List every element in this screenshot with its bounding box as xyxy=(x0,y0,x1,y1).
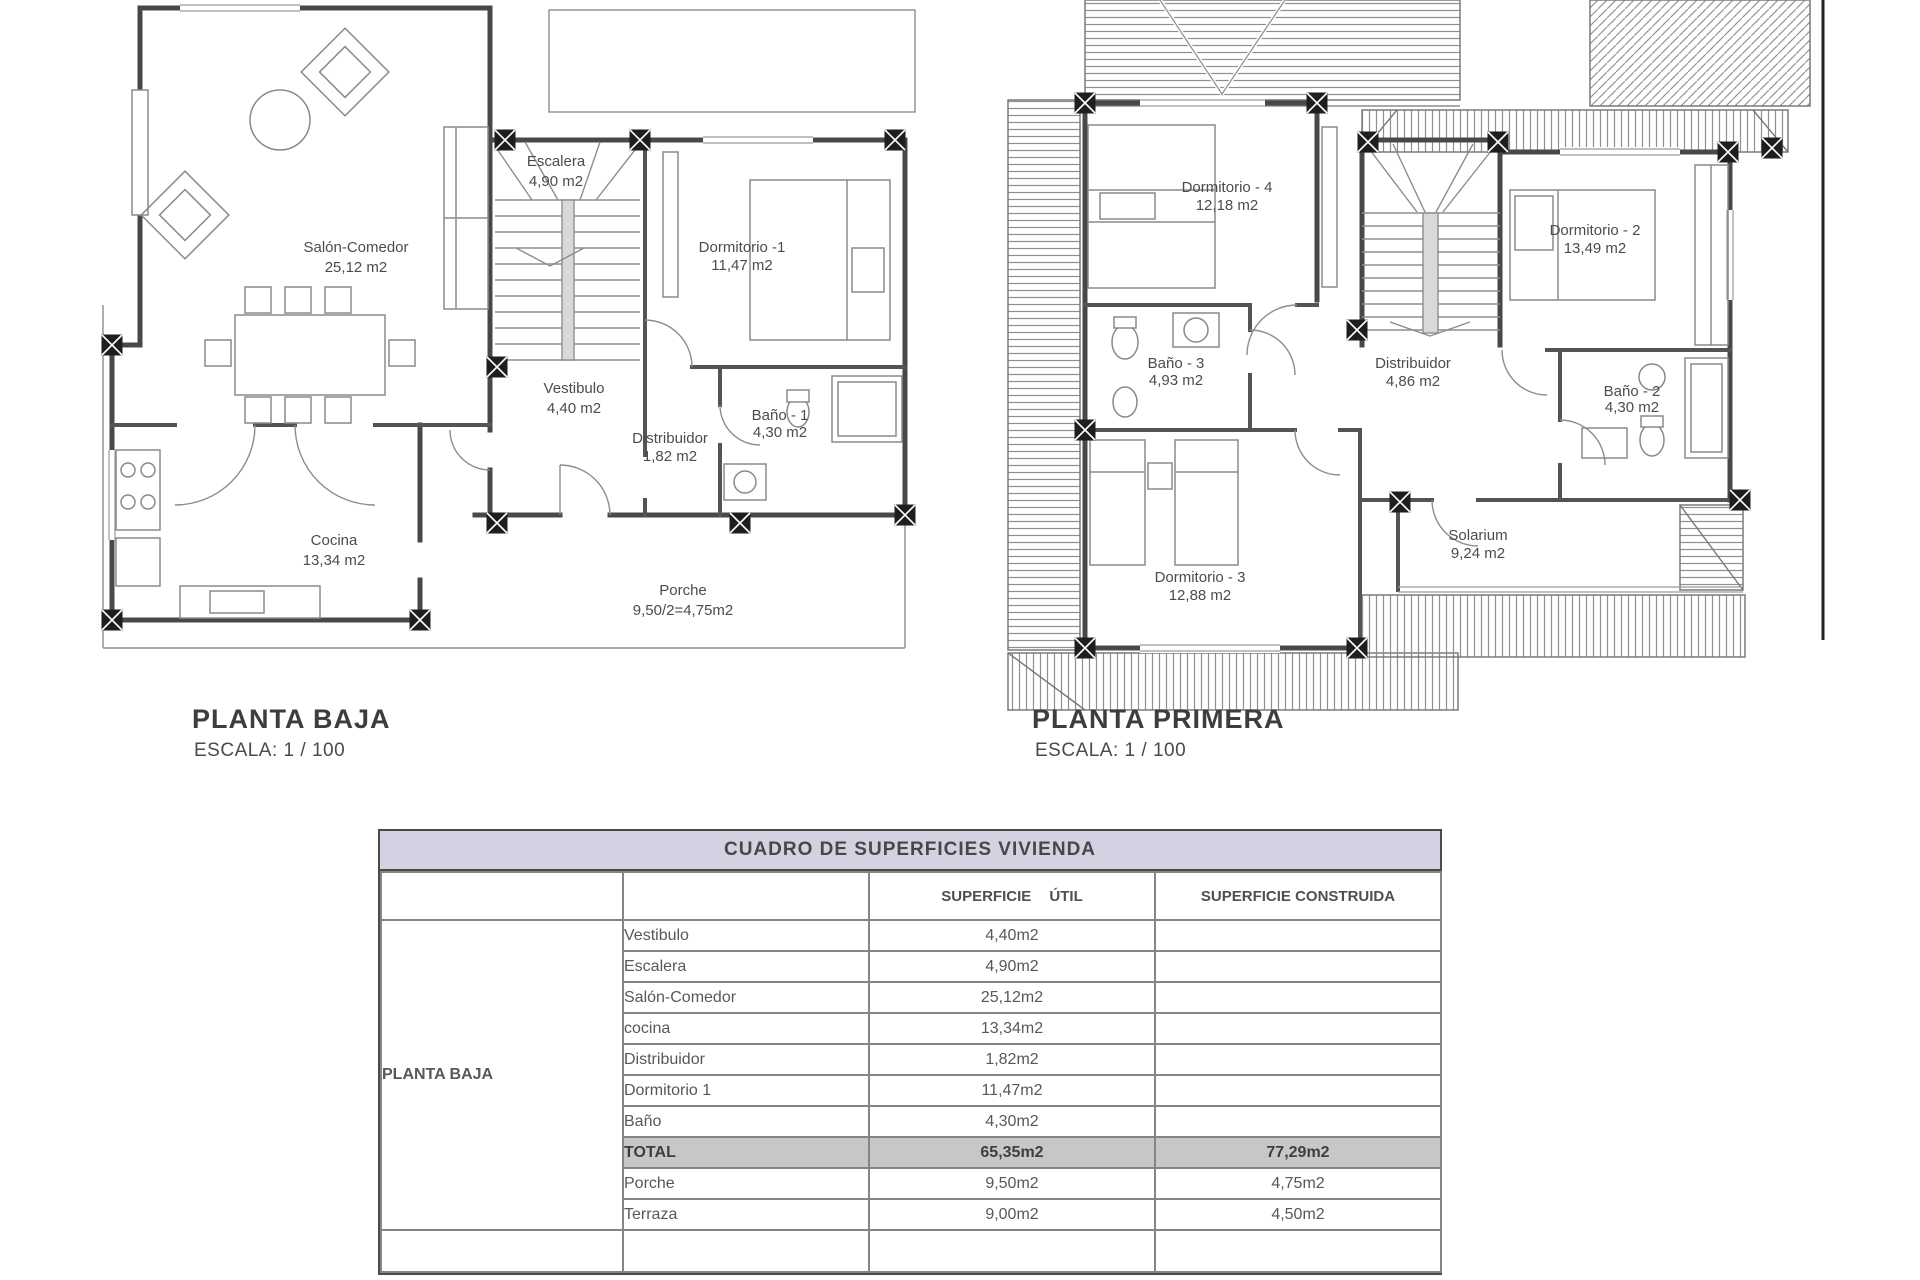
ground-floor-plan: Salón-Comedor 25,12 m2 Escalera 4,90 m2 … xyxy=(80,0,920,670)
room-labels: Dormitorio - 4 12,18 m2 Baño - 3 4,93 m2… xyxy=(1148,179,1661,604)
room-label: Dormitorio -1 xyxy=(699,239,786,256)
sofa-icon xyxy=(141,28,488,309)
empty-header-cell xyxy=(381,872,623,920)
ground-floor-title: PLANTA BAJA xyxy=(192,704,391,735)
row-construida: 4,75m2 xyxy=(1155,1168,1441,1199)
bathroom-fixtures-icon xyxy=(724,376,902,500)
door-arc-icon xyxy=(1247,305,1605,546)
round-table-icon xyxy=(250,90,310,150)
table-header-row: SUPERFICIE ÚTIL SUPERFICIE CONSTRUIDA xyxy=(381,872,1441,920)
bed-icon xyxy=(1090,440,1238,565)
table-row-cutoff xyxy=(381,1230,1441,1272)
row-util: 9,50m2 xyxy=(869,1168,1155,1199)
column-icon xyxy=(102,130,915,630)
floor-group-label: PLANTA BAJA xyxy=(381,920,623,1230)
room-area: 1,82 m2 xyxy=(643,448,697,465)
table-title: CUADRO DE SUPERFICIES VIVIENDA xyxy=(380,831,1440,871)
room-area: 4,30 m2 xyxy=(753,424,807,441)
window-icon xyxy=(107,3,813,540)
room-area: 13,34 m2 xyxy=(303,552,366,569)
row-util: 65,35m2 xyxy=(869,1137,1155,1168)
room-area: 12,18 m2 xyxy=(1196,197,1259,214)
col-header-superficie-util: SUPERFICIE ÚTIL xyxy=(869,872,1155,920)
room-area: 25,12 m2 xyxy=(325,259,388,276)
row-name: Escalera xyxy=(623,951,869,982)
empty-cell xyxy=(869,1230,1155,1272)
room-label: Solarium xyxy=(1448,527,1507,544)
dining-table-icon xyxy=(205,287,415,423)
stairs-icon xyxy=(1362,144,1500,336)
row-name: Porche xyxy=(623,1168,869,1199)
room-label: Baño - 1 xyxy=(752,407,809,424)
room-area: 13,49 m2 xyxy=(1564,240,1627,257)
row-name: Baño xyxy=(623,1106,869,1137)
room-labels: Salón-Comedor 25,12 m2 Escalera 4,90 m2 … xyxy=(303,153,809,619)
row-util: 4,90m2 xyxy=(869,951,1155,982)
row-construida xyxy=(1155,1044,1441,1075)
row-util: 9,00m2 xyxy=(869,1199,1155,1230)
room-label: Vestibulo xyxy=(544,380,605,397)
first-floor-title: PLANTA PRIMERA xyxy=(1032,704,1285,735)
row-construida xyxy=(1155,951,1441,982)
row-construida xyxy=(1155,1106,1441,1137)
row-construida: 4,50m2 xyxy=(1155,1199,1441,1230)
walls xyxy=(112,8,905,620)
room-label: Cocina xyxy=(311,532,358,549)
room-area: 4,40 m2 xyxy=(547,400,601,417)
room-label: Dormitorio - 2 xyxy=(1550,222,1641,239)
empty-cell xyxy=(1155,1230,1441,1272)
room-area: 12,88 m2 xyxy=(1169,587,1232,604)
row-util: 4,30m2 xyxy=(869,1106,1155,1137)
room-label: Baño - 2 xyxy=(1604,383,1661,400)
row-name: cocina xyxy=(623,1013,869,1044)
row-util: 25,12m2 xyxy=(869,982,1155,1013)
row-construida: 77,29m2 xyxy=(1155,1137,1441,1168)
kitchen-appliances-icon xyxy=(116,450,320,618)
col-header-superficie-construida: SUPERFICIE CONSTRUIDA xyxy=(1155,872,1441,920)
row-name: Distribuidor xyxy=(623,1044,869,1075)
row-construida xyxy=(1155,1013,1441,1044)
row-name: Salón-Comedor xyxy=(623,982,869,1013)
row-util: 11,47m2 xyxy=(869,1075,1155,1106)
room-label: Baño - 3 xyxy=(1148,355,1205,372)
row-construida xyxy=(1155,920,1441,951)
room-label: Salón-Comedor xyxy=(303,239,408,256)
row-util: 4,40m2 xyxy=(869,920,1155,951)
room-area: 11,47 m2 xyxy=(711,257,772,274)
row-name: Dormitorio 1 xyxy=(623,1075,869,1106)
room-label: Dormitorio - 3 xyxy=(1155,569,1246,586)
room-area: 9,50/2=4,75m2 xyxy=(633,602,734,619)
door-arc-icon xyxy=(175,320,760,515)
room-label: Dormitorio - 4 xyxy=(1182,179,1273,196)
room-label: Distribuidor xyxy=(632,430,708,447)
room-area: 4,90 m2 xyxy=(529,173,583,190)
surfaces-table: CUADRO DE SUPERFICIES VIVIENDA SUPERFICI… xyxy=(378,829,1442,1275)
empty-cell xyxy=(623,1230,869,1272)
row-name: TOTAL xyxy=(623,1137,869,1168)
room-label: Distribuidor xyxy=(1375,355,1451,372)
row-util: 1,82m2 xyxy=(869,1044,1155,1075)
row-util: 13,34m2 xyxy=(869,1013,1155,1044)
ground-floor-scale: ESCALA: 1 / 100 xyxy=(194,740,345,762)
empty-header-cell xyxy=(623,872,869,920)
roof-outline xyxy=(103,10,915,648)
row-name: Terraza xyxy=(623,1199,869,1230)
architectural-drawing-sheet: { "ground_floor": { "title": "PLANTA BAJ… xyxy=(0,0,1920,1280)
room-area: 4,30 m2 xyxy=(1605,399,1659,416)
room-area: 9,24 m2 xyxy=(1451,545,1505,562)
room-area: 4,86 m2 xyxy=(1386,373,1440,390)
room-label: Porche xyxy=(659,582,707,599)
first-floor-scale: ESCALA: 1 / 100 xyxy=(1035,740,1186,762)
room-label: Escalera xyxy=(527,153,586,170)
table-row: PLANTA BAJA Vestibulo 4,40m2 xyxy=(381,920,1441,951)
room-area: 4,93 m2 xyxy=(1149,372,1203,389)
surfaces-table-grid: SUPERFICIE ÚTIL SUPERFICIE CONSTRUIDA PL… xyxy=(380,871,1442,1273)
empty-cell xyxy=(381,1230,623,1272)
row-construida xyxy=(1155,1075,1441,1106)
row-construida xyxy=(1155,982,1441,1013)
first-floor-plan: Dormitorio - 4 12,18 m2 Baño - 3 4,93 m2… xyxy=(995,0,1840,720)
row-name: Vestibulo xyxy=(623,920,869,951)
